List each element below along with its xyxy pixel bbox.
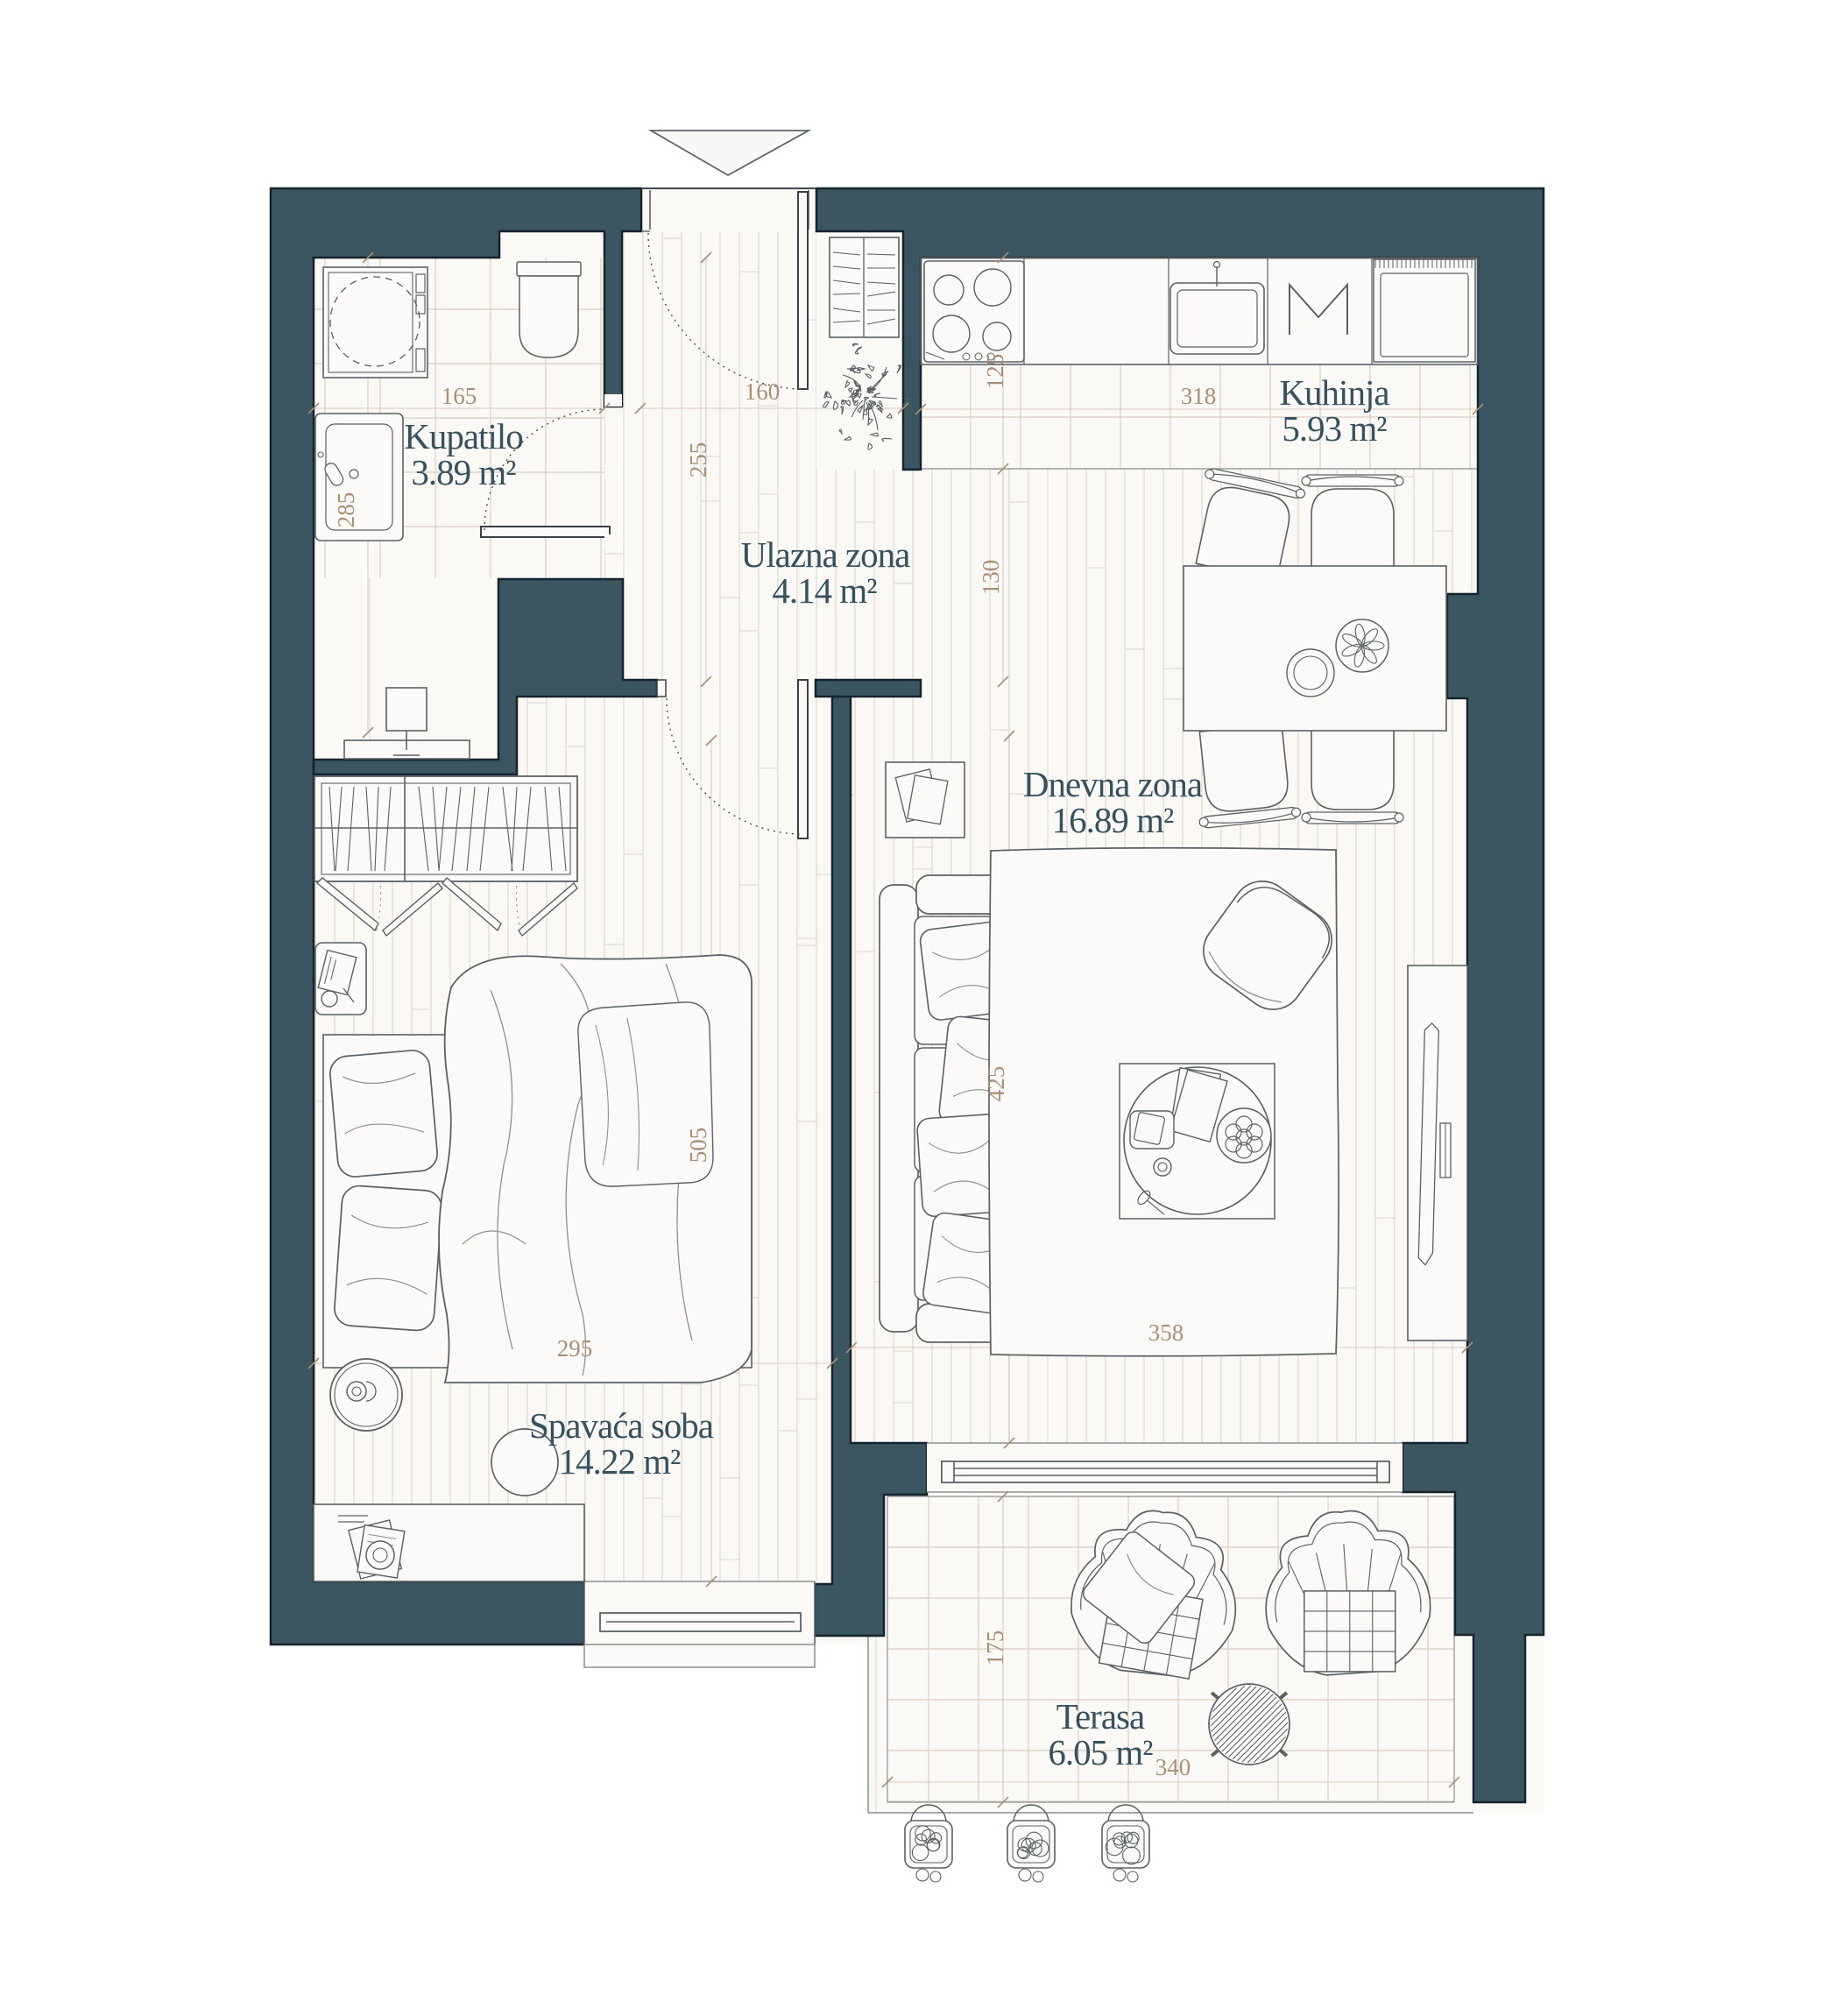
svg-text:Kuhinja: Kuhinja (1279, 372, 1389, 413)
svg-text:Ulazna zona: Ulazna zona (741, 534, 911, 575)
svg-text:125: 125 (982, 354, 1008, 390)
svg-text:Terasa: Terasa (1056, 1696, 1145, 1737)
svg-text:6.05 m²: 6.05 m² (1048, 1732, 1153, 1772)
svg-text:Spavaća soba: Spavaća soba (529, 1405, 714, 1446)
svg-text:130: 130 (978, 560, 1004, 596)
svg-text:175: 175 (982, 1630, 1008, 1666)
svg-text:505: 505 (685, 1128, 711, 1164)
svg-text:5.93 m²: 5.93 m² (1282, 408, 1387, 449)
svg-text:340: 340 (1155, 1754, 1191, 1780)
svg-text:425: 425 (983, 1066, 1009, 1102)
svg-text:285: 285 (333, 492, 359, 528)
svg-text:358: 358 (1148, 1319, 1184, 1346)
svg-text:14.22 m²: 14.22 m² (559, 1441, 681, 1482)
svg-text:165: 165 (442, 383, 477, 409)
svg-text:Dnevna zona: Dnevna zona (1023, 764, 1203, 804)
svg-text:3.89 m²: 3.89 m² (411, 452, 516, 492)
svg-text:295: 295 (557, 1335, 593, 1362)
svg-text:16.89 m²: 16.89 m² (1052, 800, 1174, 840)
svg-text:255: 255 (685, 442, 711, 478)
svg-text:4.14 m²: 4.14 m² (772, 570, 877, 611)
svg-text:318: 318 (1181, 383, 1217, 409)
svg-text:160: 160 (745, 378, 781, 405)
svg-text:Kupatilo: Kupatilo (404, 416, 522, 456)
